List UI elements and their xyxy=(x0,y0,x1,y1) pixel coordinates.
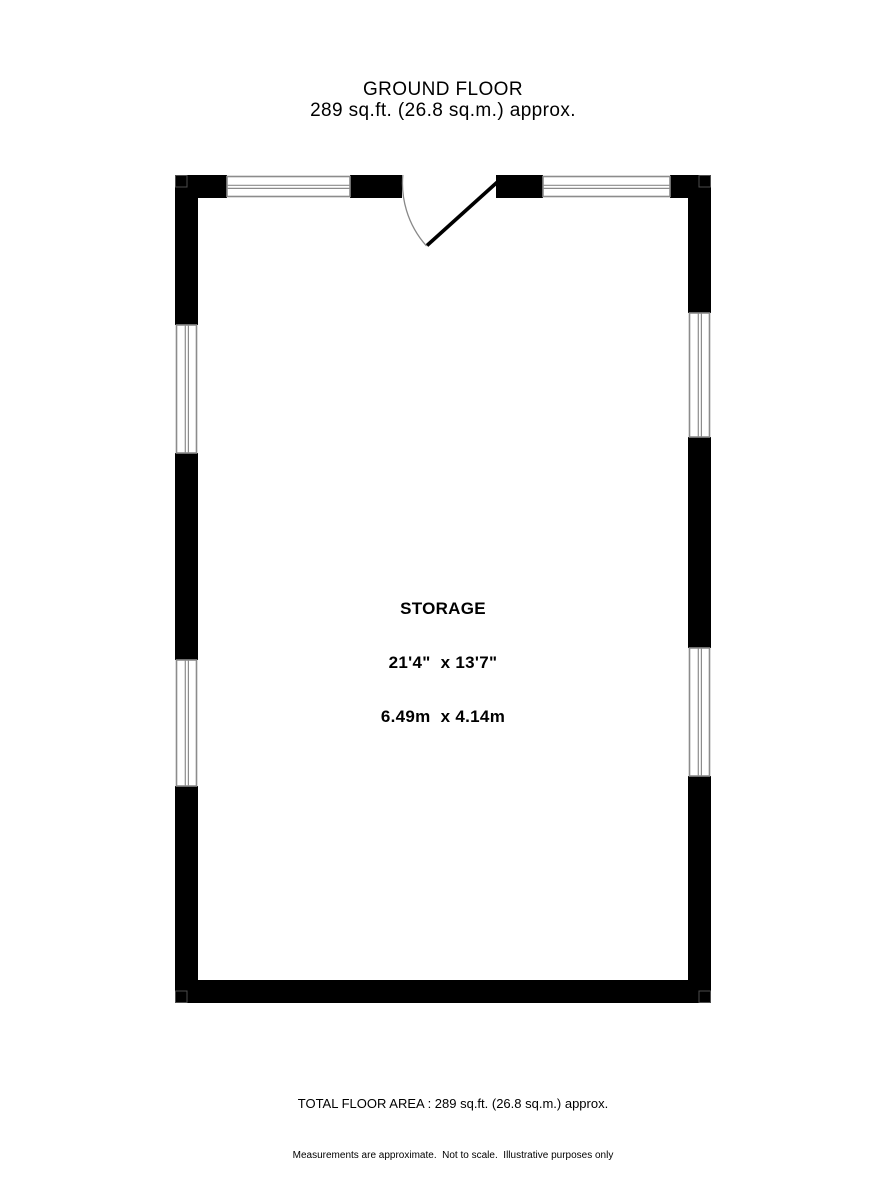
window-frame xyxy=(177,325,197,453)
wall-right-lower xyxy=(688,776,711,1003)
wall-left-lower xyxy=(175,786,198,1003)
plan-title-block: GROUND FLOOR 289 sq.ft. (26.8 sq.m.) app… xyxy=(0,79,886,121)
window-right-upper xyxy=(690,313,710,437)
disclaimer: Measurements are approximate. Not to sca… xyxy=(10,1148,886,1163)
wall-top-right-of-door xyxy=(496,175,543,198)
window-frame xyxy=(543,177,670,197)
wall-top-left-of-door xyxy=(350,175,402,198)
room-size-metric: 6.49m x 4.14m xyxy=(0,708,886,726)
window-frame xyxy=(690,313,710,437)
room-size-imperial: 21'4" x 13'7" xyxy=(0,654,886,672)
room-name: STORAGE xyxy=(0,600,886,618)
door-swing-arc xyxy=(402,175,426,246)
window-left-upper xyxy=(177,325,197,453)
room-label: STORAGE 21'4" x 13'7" 6.49m x 4.14m xyxy=(0,564,886,762)
door-leaf xyxy=(427,181,499,246)
plan-title: GROUND FLOOR xyxy=(0,79,886,100)
plan-footer: TOTAL FLOOR AREA : 289 sq.ft. (26.8 sq.m… xyxy=(10,1060,886,1179)
plan-subtitle: 289 sq.ft. (26.8 sq.m.) approx. xyxy=(0,100,886,121)
window-top-right xyxy=(543,177,670,197)
window-top-left xyxy=(227,177,350,197)
wall-bottom xyxy=(175,980,711,1003)
total-floor-area: TOTAL FLOOR AREA : 289 sq.ft. (26.8 sq.m… xyxy=(10,1096,886,1112)
window-frame xyxy=(227,177,350,197)
wall-right-upper xyxy=(688,175,711,313)
door xyxy=(402,175,498,246)
wall-left-upper xyxy=(175,175,198,325)
floorplan-page: GROUND FLOOR 289 sq.ft. (26.8 sq.m.) app… xyxy=(0,0,886,1179)
